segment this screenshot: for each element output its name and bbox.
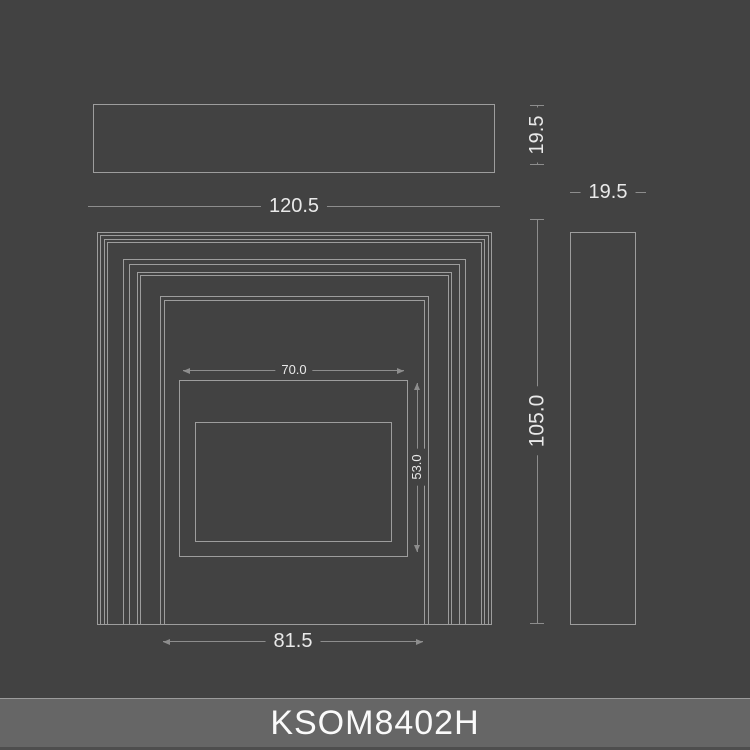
dim-label-inner-width: 70.0 [275, 362, 312, 378]
dim-arrow-inner-height-top [414, 383, 420, 390]
dim-tick-front-height-upper [530, 219, 544, 220]
firebox-inner-rect [195, 422, 392, 542]
dim-label-inner-height: 53.0 [409, 448, 425, 485]
dim-label-front-width: 120.5 [261, 194, 327, 218]
top-view-outline [93, 104, 495, 173]
dim-arrow-opening-width-left [163, 639, 170, 645]
dim-arrow-inner-width-right [397, 368, 404, 374]
frame-base-line [97, 624, 492, 625]
technical-drawing-canvas: 120.5 19.5 70.0 53.0 81.5 19.5 105 [0, 0, 750, 750]
product-code-bar: KSOM8402H [0, 698, 750, 747]
dim-tick-top-depth-upper [530, 105, 544, 106]
dim-arrow-inner-height-bottom [414, 545, 420, 552]
dim-label-opening-width: 81.5 [266, 629, 321, 653]
dim-arrow-opening-width-right [416, 639, 423, 645]
dim-arrow-inner-width-left [183, 368, 190, 374]
product-code-text: KSOM8402H [270, 704, 479, 743]
dim-label-side-depth: 19.5 [581, 180, 636, 204]
dim-tick-top-depth-lower [530, 164, 544, 165]
dim-label-front-height: 105.0 [524, 387, 549, 456]
side-view-outline [570, 232, 636, 625]
dim-label-top-depth: 19.5 [525, 108, 549, 163]
dim-tick-front-height-lower [530, 623, 544, 624]
